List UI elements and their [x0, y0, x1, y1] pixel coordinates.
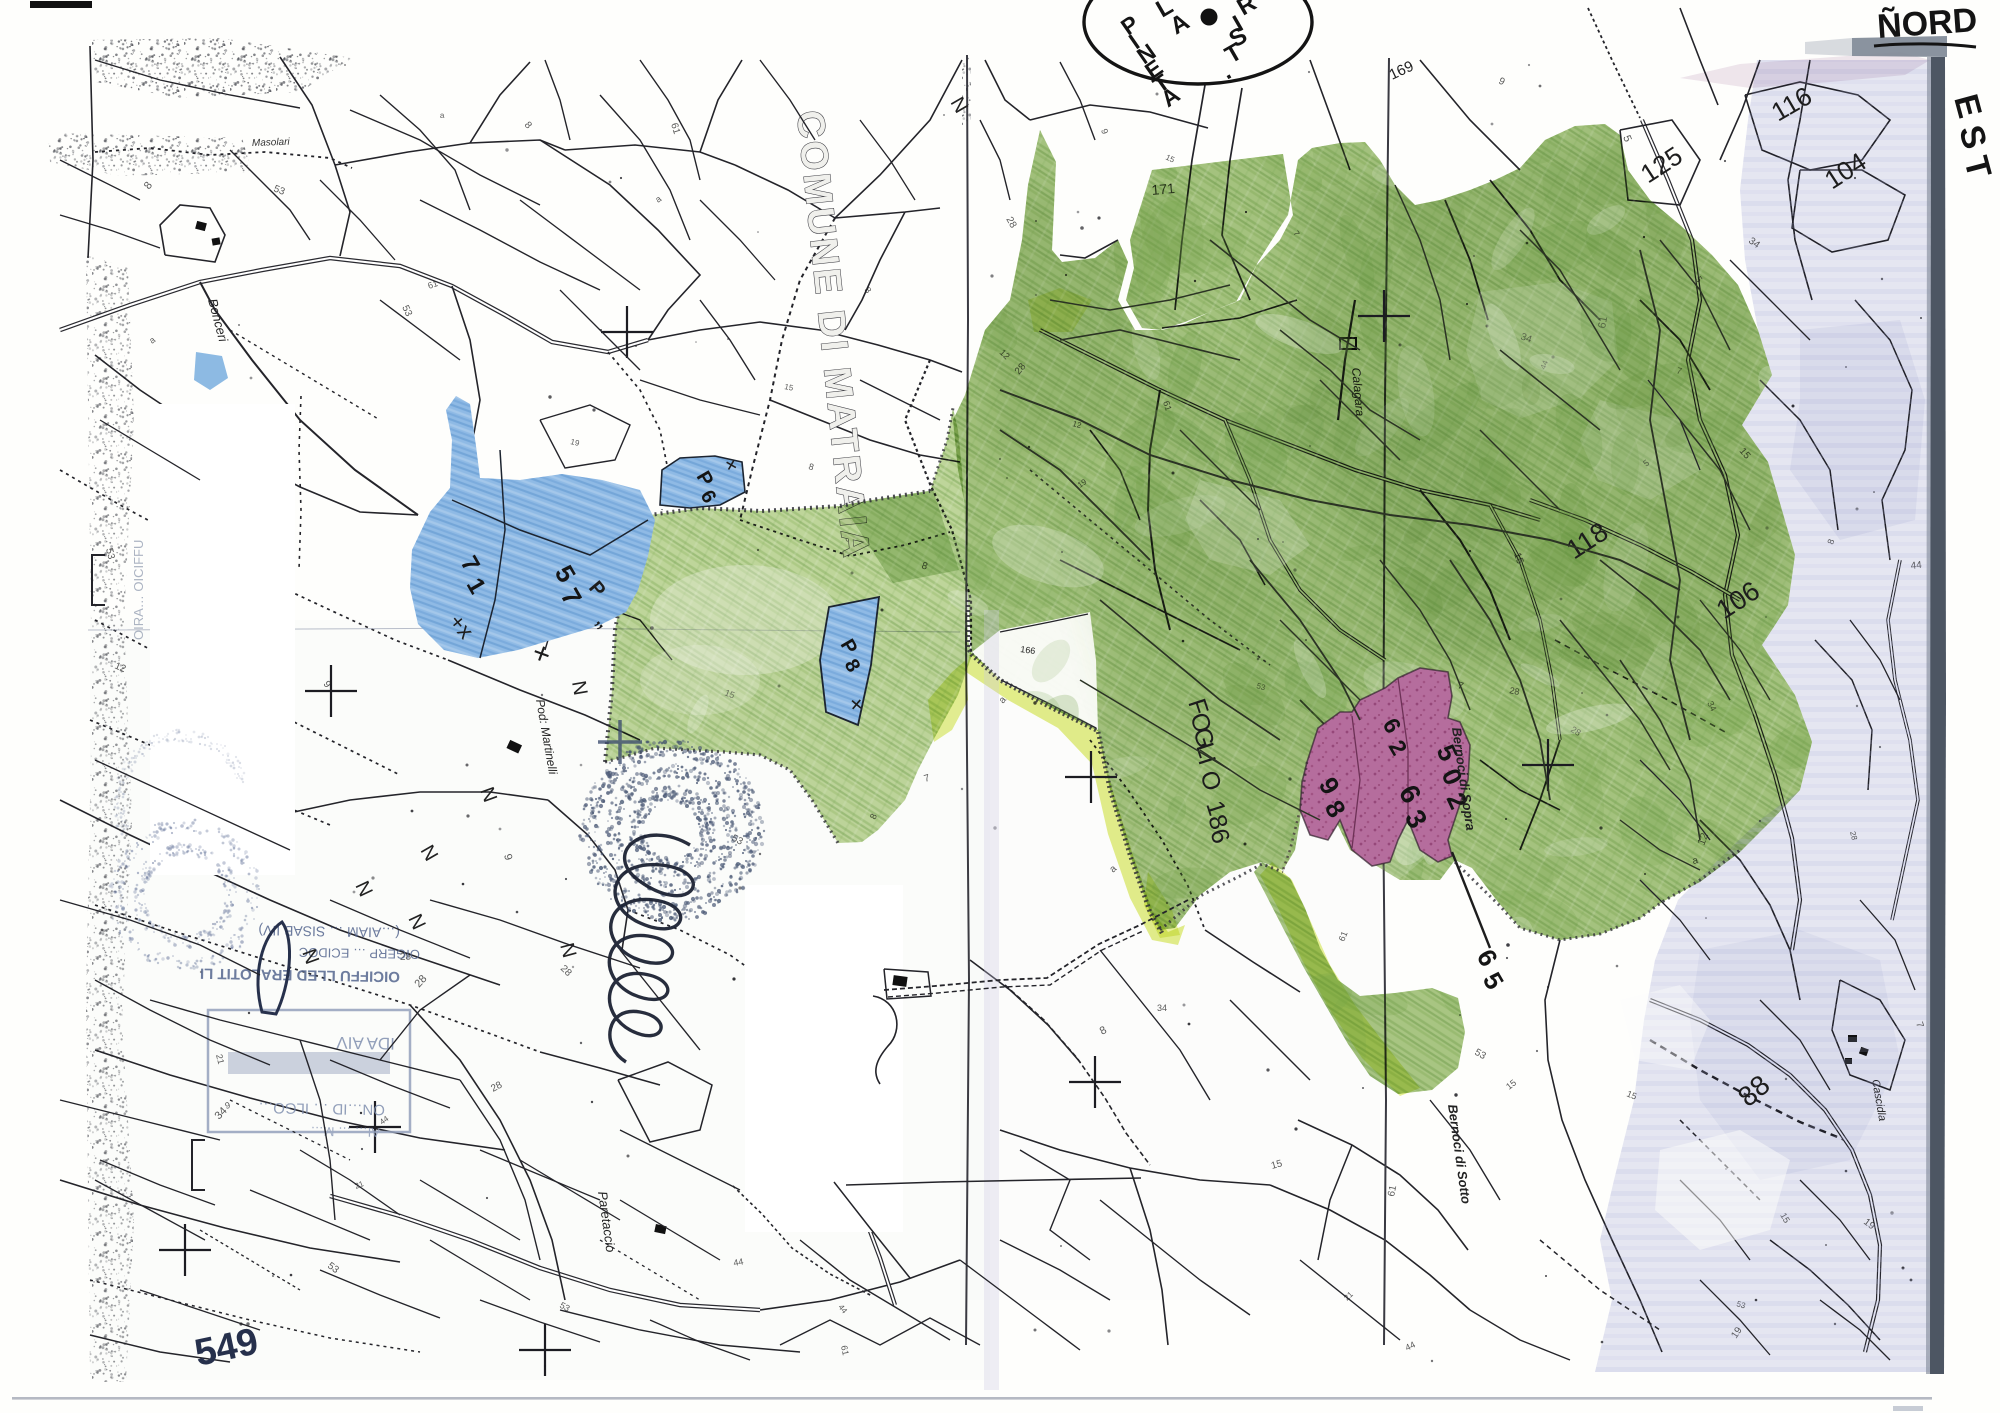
svg-text:166: 166 [1020, 644, 1036, 656]
svg-text:OIRA… OICIFFU: OIRA… OICIFFU [131, 540, 146, 640]
svg-text:AI… … M…: AI… … M… [310, 1124, 380, 1140]
svg-text:34: 34 [1157, 1003, 1167, 1013]
svg-text:Masolari: Masolari [252, 137, 291, 149]
svg-text:IDA AIV: IDA AIV [335, 1033, 395, 1053]
svg-text:44: 44 [733, 1256, 745, 1268]
svg-text:61: 61 [839, 1344, 851, 1356]
svg-text:OICIFFU LLED ERALOTIT LI: OICIFFU LLED ERALOTIT LI [200, 965, 400, 985]
svg-text:ÑORD: ÑORD [1876, 1, 1979, 46]
